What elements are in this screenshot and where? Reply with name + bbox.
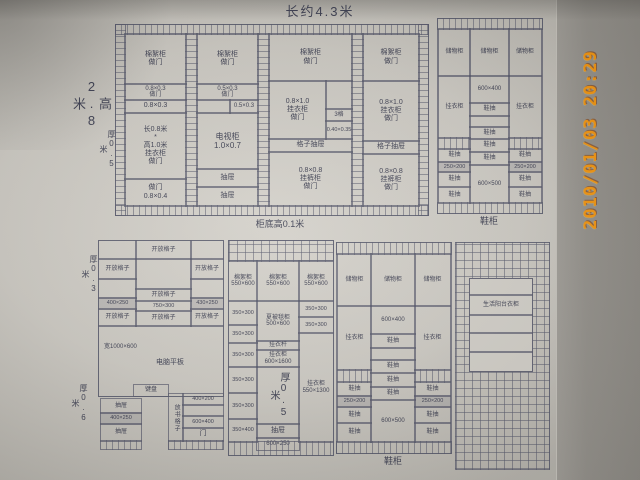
photographed-cabinet-plan: 长约4.3米 高2.8米 厚0.5米 柜底高0.1米 棉絮柜 做门 0.8×0.… (0, 0, 640, 480)
photo-vignette (0, 0, 640, 480)
